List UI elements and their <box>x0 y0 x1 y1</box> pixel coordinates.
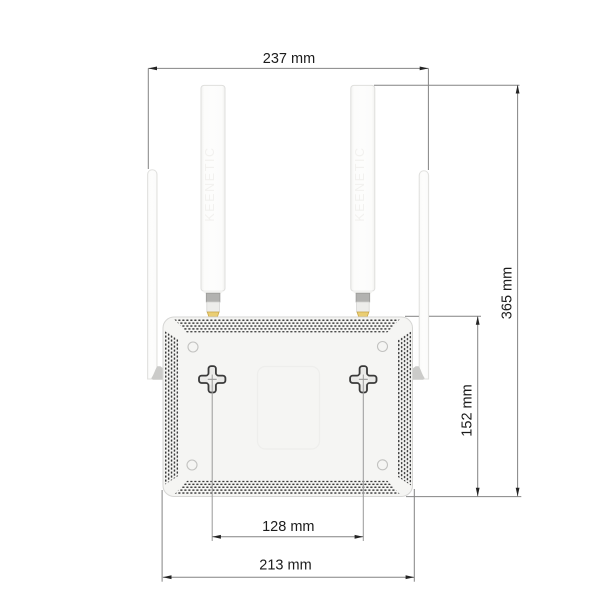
svg-text:213 mm: 213 mm <box>259 558 311 574</box>
svg-text:128 mm: 128 mm <box>262 519 314 535</box>
svg-text:365 mm: 365 mm <box>500 267 516 319</box>
svg-text:152 mm: 152 mm <box>460 384 476 436</box>
svg-text:KEENETIC: KEENETIC <box>203 146 217 221</box>
svg-text:237 mm: 237 mm <box>263 51 315 67</box>
svg-text:KEENETIC: KEENETIC <box>353 146 367 221</box>
